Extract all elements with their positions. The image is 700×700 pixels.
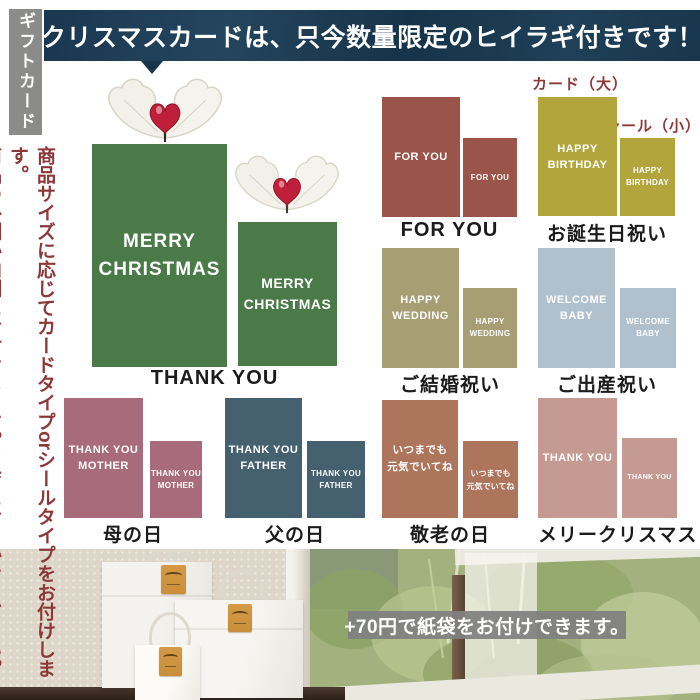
card-wedding-large: HAPPYWEDDING: [382, 248, 459, 368]
card-father-large: THANK YOUFATHER: [225, 398, 302, 518]
card-respect-large: いつまでも元気でいてね: [382, 400, 458, 518]
card-birthday-small-text: HAPPYBIRTHDAY: [626, 165, 669, 189]
card-merry-small-text: THANK YOU: [627, 472, 671, 484]
section-label-respect: 敬老の日: [382, 520, 518, 547]
card-mother-large-text: THANK YOUMOTHER: [69, 442, 139, 474]
card-foryou-large-text: FOR YOU: [394, 149, 447, 165]
card-mother-small-text: THANK YOUMOTHER: [151, 468, 201, 492]
paper-bag-offer-text: +70円で紙袋をお付けできます。: [344, 612, 629, 639]
gift-card-tag-text: ギフトカード: [13, 12, 38, 132]
section-label-wedding: ご結婚祝い: [382, 370, 518, 397]
card-respect-small-text: いつまでも元気でいてね: [467, 467, 515, 493]
card-merry-small: THANK YOU: [622, 438, 677, 518]
side-note-line1: 商品サイズに応じてカードタイプorシールタイプをお付けします。: [7, 146, 55, 678]
card-mother-large: THANK YOUMOTHER: [64, 398, 143, 518]
section-label-mother: 母の日: [64, 520, 202, 547]
section-label-father: 父の日: [225, 520, 365, 547]
promo-image: クリスマスカードは、只今数量限定のヒイラギ付きです！ ギフトカード 商品サイズに…: [0, 0, 700, 700]
side-note-line2: 商品の外側か内側にお付けします。当店におまかせください。: [0, 146, 1, 678]
bag-tag: [161, 565, 186, 594]
section-label-foryou: FOR YOU: [382, 219, 517, 242]
bag-tag: [159, 647, 182, 676]
card-baby-large: WELCOMEBABY: [538, 248, 615, 368]
side-note: 商品サイズに応じてカードタイプorシールタイプをお付けします。商品の外側か内側に…: [2, 146, 58, 700]
card-baby-large-text: WELCOMEBABY: [546, 292, 607, 324]
card-wedding-large-text: HAPPYWEDDING: [392, 292, 449, 324]
paper-bag-photo: +70円で紙袋をお付けできます。: [0, 549, 700, 700]
holly-decoration-icon: [98, 72, 232, 150]
card-foryou-small: FOR YOU: [463, 138, 517, 217]
bag-tag: [228, 604, 252, 632]
card-merry-large: THANK YOU: [538, 398, 617, 518]
card-father-large-text: THANK YOUFATHER: [229, 442, 299, 474]
card-foryou-small-text: FOR YOU: [471, 172, 509, 184]
top-banner: クリスマスカードは、只今数量限定のヒイラギ付きです！: [44, 10, 700, 61]
card-wedding-small: HAPPYWEDDING: [463, 288, 517, 368]
card-respect-small: いつまでも元気でいてね: [463, 441, 518, 518]
section-label-birthday: お誕生日祝い: [538, 219, 676, 246]
section-label-baby: ご出産祝い: [538, 370, 676, 397]
section-label-christmas: THANK YOU: [92, 367, 337, 390]
card-birthday-large-text: HAPPYBIRTHDAY: [548, 141, 608, 173]
paper-bag-offer-banner: +70円で紙袋をお付けできます。: [348, 611, 626, 639]
top-banner-text: クリスマスカードは、只今数量限定のヒイラギ付きです！: [41, 18, 700, 54]
bag-crease: [102, 595, 212, 597]
annotation-seal-small: シール（小）: [605, 115, 689, 136]
section-label-merry: メリークリスマス: [538, 520, 677, 547]
card-wedding-small-text: HAPPYWEDDING: [470, 316, 511, 340]
card-baby-small-text: WELCOMEBABY: [626, 316, 670, 340]
card-baby-small: WELCOMEBABY: [620, 288, 676, 368]
card-birthday-large: HAPPYBIRTHDAY: [538, 97, 617, 216]
card-merry-large-text: THANK YOU: [543, 450, 613, 466]
holly-decoration-icon: [226, 148, 348, 222]
card-birthday-small: HAPPYBIRTHDAY: [620, 138, 675, 216]
card-mother-small: THANK YOUMOTHER: [150, 441, 202, 518]
card-christmas-large-text: MERRYCHRISTMAS: [99, 228, 221, 284]
card-christmas-small-text: MERRYCHRISTMAS: [244, 273, 332, 315]
card-respect-large-text: いつまでも元気でいてね: [387, 442, 453, 476]
card-christmas-small: MERRYCHRISTMAS: [238, 222, 337, 366]
paper-bag-small: [135, 645, 200, 700]
card-christmas-large: MERRYCHRISTMAS: [92, 144, 227, 367]
card-foryou-large: FOR YOU: [382, 97, 460, 217]
card-father-small-text: THANK YOUFATHER: [311, 468, 361, 492]
gift-card-tag: ギフトカード: [9, 9, 42, 135]
card-father-small: THANK YOUFATHER: [307, 441, 365, 518]
annotation-card-large: カード（大）: [532, 73, 622, 94]
